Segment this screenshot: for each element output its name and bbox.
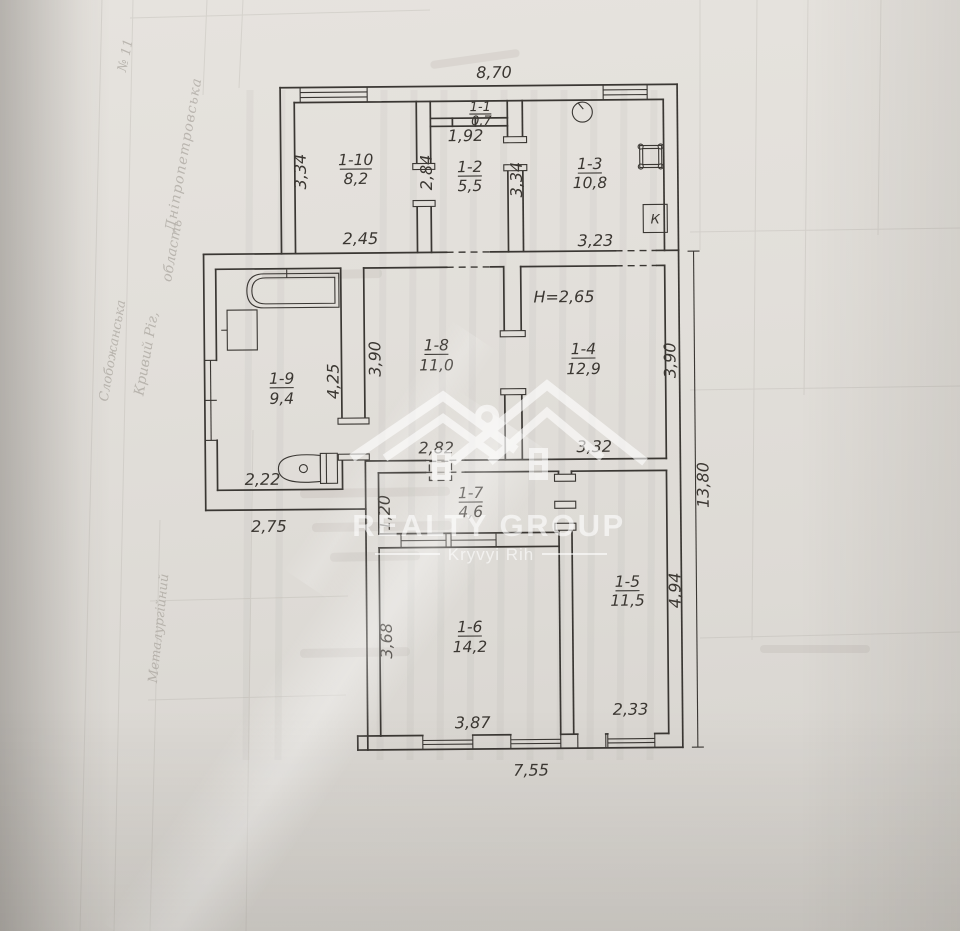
photographed-floorplan-page: № 11 Дніпропетровська область Кривий Ріг… (0, 0, 960, 931)
margin-text-region: Дніпропетровська (162, 76, 205, 233)
svg-text:1-3: 1-3 (577, 155, 602, 173)
dim-bath-width: 2,75 (251, 517, 287, 536)
floorplan-drawing: № 11 Дніпропетровська область Кривий Ріг… (0, 0, 960, 931)
svg-text:1-2: 1-2 (457, 158, 482, 176)
room-label-1-3: 1-3 10,8 (572, 155, 607, 192)
dim-1-2-right-height: 3,34 (507, 162, 526, 198)
margin-text-district: Металургійний (146, 573, 172, 685)
ceiling-height-note: H=2,65 (533, 287, 594, 307)
margin-text-number: № 11 (115, 38, 137, 74)
svg-text:9,4: 9,4 (269, 390, 294, 408)
dim-1-5-width: 2,33 (613, 700, 649, 719)
room-label-1-2: 1-2 5,5 (457, 158, 483, 195)
svg-text:1-4: 1-4 (571, 340, 596, 358)
dim-1-1-width: 1,92 (448, 126, 484, 145)
room-label-1-4: 1-4 12,9 (566, 340, 601, 378)
svg-text:1-10: 1-10 (338, 151, 373, 169)
flue-label: К (651, 212, 661, 227)
svg-text:1-7: 1-7 (458, 484, 484, 502)
svg-text:1-6: 1-6 (457, 618, 483, 636)
svg-text:8,2: 8,2 (343, 170, 368, 188)
room-label-1-8: 1-8 11,0 (419, 336, 454, 374)
room-label-1-1: 1-1 0,7 (469, 100, 492, 129)
svg-text:11,5: 11,5 (610, 592, 645, 610)
svg-text:11,0: 11,0 (419, 356, 454, 374)
watermark-subtitle: Kryvyi Rih (448, 545, 535, 564)
svg-text:1-8: 1-8 (424, 336, 450, 354)
window-bottom-a (423, 735, 473, 749)
dim-1-4-height: 3,90 (660, 342, 679, 378)
watermark-title: REALTY GROUP (352, 508, 625, 543)
margin-text-city: Кривий Ріг, (131, 311, 162, 398)
svg-text:1-1: 1-1 (470, 100, 491, 115)
svg-text:1-9: 1-9 (269, 370, 294, 388)
dim-top-width: 8,70 (476, 63, 512, 82)
dim-1-9-height: 4,25 (324, 363, 343, 399)
bleedthrough-margin-text: № 11 Дніпропетровська область Кривий Ріг… (97, 38, 206, 685)
dim-1-9-width: 2,22 (245, 470, 281, 489)
dim-1-5-height: 4,94 (665, 572, 684, 608)
dim-right-height: 13,80 (693, 462, 712, 508)
dim-1-6-width: 3,87 (455, 713, 492, 732)
svg-text:1-5: 1-5 (615, 573, 640, 591)
logo-tower-left (432, 450, 451, 480)
boiler-icon (572, 102, 592, 122)
logo-tower-right (529, 448, 548, 480)
svg-text:14,2: 14,2 (453, 638, 488, 656)
window-bathroom (204, 360, 217, 440)
dim-1-10-width: 2,45 (343, 229, 379, 248)
dim-1-8-height: 3,90 (365, 341, 384, 377)
room-label-1-10: 1-10 8,2 (338, 151, 374, 188)
margin-text-street: Слобожанська (97, 299, 130, 403)
dim-bottom-width: 7,55 (513, 760, 549, 779)
dim-1-6-height: 3,68 (377, 623, 396, 659)
dim-1-3-width: 3,23 (578, 231, 614, 250)
dim-1-10-height: 3,34 (291, 154, 310, 190)
toilet (278, 453, 337, 484)
dim-1-2-height: 2,84 (417, 155, 436, 191)
window-bottom-b (511, 734, 561, 748)
svg-text:5,5: 5,5 (458, 177, 483, 195)
window-top-left (300, 87, 367, 103)
svg-text:12,9: 12,9 (566, 360, 601, 378)
svg-text:10,8: 10,8 (573, 174, 608, 192)
room-label-1-5: 1-5 11,5 (610, 573, 645, 610)
